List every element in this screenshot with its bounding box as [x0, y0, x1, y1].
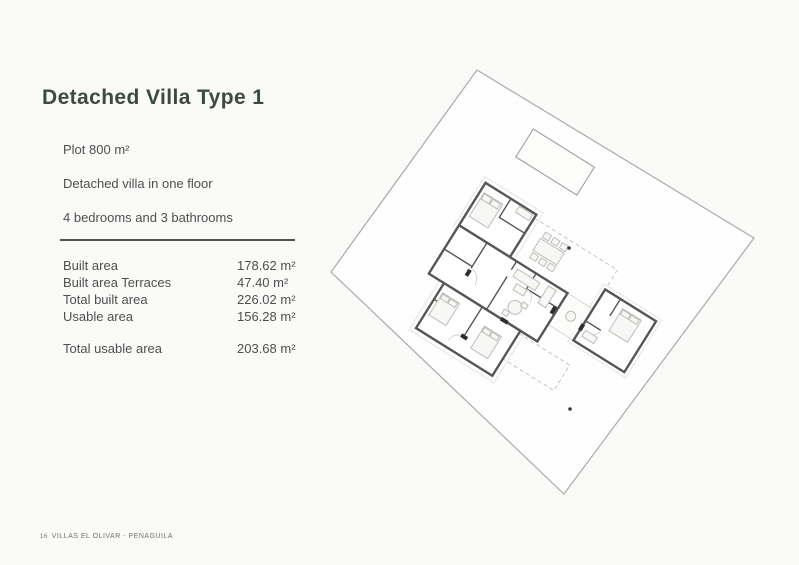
area-label: Total usable area [63, 340, 237, 357]
table-row: Built area Terraces 47.40 m² [63, 274, 313, 291]
table-row: Usable area 156.28 m² [63, 308, 313, 325]
spec-plot: Plot 800 m² [63, 143, 233, 156]
area-label: Built area [63, 257, 237, 274]
table-row: Built area 178.62 m² [63, 257, 313, 274]
area-table: Built area 178.62 m² Built area Terraces… [63, 257, 313, 357]
area-value: 178.62 m² [237, 257, 296, 274]
area-label: Usable area [63, 308, 237, 325]
divider-line [60, 239, 295, 241]
spec-list: Plot 800 m² Detached villa in one floor … [63, 143, 233, 245]
table-row-total: Total usable area 203.68 m² [63, 340, 313, 357]
area-label: Built area Terraces [63, 274, 237, 291]
area-value: 156.28 m² [237, 308, 296, 325]
page-number: 16 [40, 534, 48, 540]
spec-rooms: 4 bedrooms and 3 bathrooms [63, 211, 233, 224]
page-title: Detached Villa Type 1 [42, 86, 264, 110]
footer: 16VILLAS EL OLIVAR - PENAGUILA [40, 533, 173, 540]
area-label: Total built area [63, 291, 237, 308]
area-value: 47.40 m² [237, 274, 288, 291]
area-value: 226.02 m² [237, 291, 296, 308]
project-name: VILLAS EL OLIVAR - PENAGUILA [52, 533, 173, 540]
area-value: 203.68 m² [237, 340, 296, 357]
spec-floors: Detached villa in one floor [63, 177, 233, 190]
table-row: Total built area 226.02 m² [63, 291, 313, 308]
